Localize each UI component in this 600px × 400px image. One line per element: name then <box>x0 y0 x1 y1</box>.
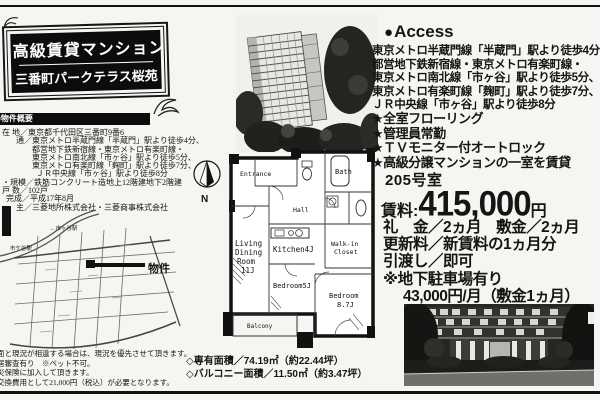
room-label-living-2: Dining <box>235 248 262 257</box>
room-label-hall: Hall <box>293 206 309 214</box>
room-label-wic-2: Closet <box>334 248 358 256</box>
access-text-block: 東京メトロ半蔵門線「半蔵門」駅より徒歩4分、 都営地下鉄新宿線・東京メトロ有楽町… <box>372 45 600 113</box>
flourish-ornament-small-icon <box>0 14 20 32</box>
title-inner-frame: 高級賃貸マンション 三番町パークテラス桜苑 <box>6 26 166 97</box>
room-label-balcony: Balcony <box>247 323 273 330</box>
feature-list: ★全室フローリング ★管理員常勤 ★ＴＶモニター付オートロック ★高級分譲マンシ… <box>372 112 600 170</box>
entrance-photo <box>404 304 594 386</box>
terms-block: 礼 金／2ヵ月 敷金／2ヵ月 更新料／新賃料の1ヵ月分 引渡し／即可 ※地下駐車… <box>383 219 600 305</box>
feature-item: ★管理員常勤 <box>372 127 600 142</box>
terms-line: 更新料／新賃料の1ヵ月分 <box>383 236 600 253</box>
rent-label: 賃料: <box>381 197 418 221</box>
terms-line: 引渡し／即可 <box>383 253 600 270</box>
map-illustration: 物件 ←市ヶ谷駅 市ケ谷駅 <box>0 206 185 354</box>
map-property-marker <box>86 260 95 268</box>
map-station-label-left: 市ケ谷駅 <box>10 244 33 252</box>
room-label-kitchen: Kitchen4J <box>273 245 314 254</box>
map-pointer-bar <box>95 263 145 267</box>
overview-text-block: 在 地／東京都千代田区三番町9番6 通／東京メトロ半蔵門線「半蔵門」駅より徒歩4… <box>2 129 192 212</box>
title-outer-frame: 高級賃貸マンション 三番町パークテラス桜苑 <box>2 22 170 102</box>
access-line: 都営地下鉄新宿線・東京メトロ有楽町線・ <box>372 59 600 73</box>
access-line: 東京メトロ南北線「市ヶ谷」駅より徒歩5分、 <box>372 72 600 86</box>
top-rule <box>0 5 600 7</box>
bottom-rule <box>0 391 600 394</box>
balcony-area-line: ◇バルコニー面積／11.50㎡（約3.47坪） <box>186 369 396 382</box>
floor-area-block: ◇専有面積／74.19㎡（約22.44坪） ◇バルコニー面積／11.50㎡（約3… <box>186 356 396 381</box>
flourish-ornament-icon <box>152 94 180 118</box>
title-black-panel: 高級賃貸マンション 三番町パークテラス桜苑 <box>10 30 162 93</box>
room-label-living-1: Living <box>235 239 262 248</box>
floor-plan: N <box>185 146 385 352</box>
neighborhood-map: 物件 ←市ヶ谷駅 市ケ谷駅 <box>0 206 185 354</box>
room-label-wic-1: Walk-in <box>331 240 358 248</box>
room-label-living-3: Room <box>237 257 256 266</box>
compass-n-label: N <box>201 194 208 205</box>
title-line2: 三番町パークテラス桜苑 <box>13 65 159 88</box>
room-label-bedroom87-2: 8.7J <box>337 301 354 309</box>
map-station-label-top: ←市ヶ谷駅 <box>50 224 78 232</box>
building-photo <box>236 15 378 152</box>
room-label-bedroom87-1: Bedroom <box>329 292 359 300</box>
access-line: 東京メトロ有楽町線「麹町」駅より徒歩7分、 <box>372 86 600 100</box>
access-header: ●Access <box>384 22 454 42</box>
terms-line: ※地下駐車場有り <box>383 271 600 288</box>
property-title-box: 高級賃貸マンション 三番町パークテラス桜苑 <box>2 22 170 102</box>
overview-header-bar: ■物件概要 <box>0 113 150 125</box>
feature-item: ★ＴＶモニター付オートロック <box>372 141 600 156</box>
map-property-label: 物件 <box>148 261 170 275</box>
rent-unit: 円 <box>531 197 547 221</box>
terms-line: 43,000円/月（敷金1ヵ月） <box>383 288 600 305</box>
title-line1: 高級賃貸マンション <box>12 34 159 62</box>
room-label-entrance: Entrance <box>240 170 271 178</box>
bullet-circle-icon: ● <box>384 24 393 41</box>
terms-line: 礼 金／2ヵ月 敷金／2ヵ月 <box>383 219 600 236</box>
access-header-label: Access <box>394 22 454 41</box>
access-line: 東京メトロ半蔵門線「半蔵門」駅より徒歩4分、 <box>372 45 600 59</box>
rent-amount: 415,000 <box>418 184 530 224</box>
room-label-living-4: 11J <box>241 266 255 275</box>
exclusive-area-line: ◇専有面積／74.19㎡（約22.44坪） <box>186 356 396 369</box>
feature-item: ★全室フローリング <box>372 112 600 127</box>
map-legend-bar <box>2 206 11 236</box>
room-label-bedroom5: Bedroom5J <box>273 282 311 290</box>
facade-upper-floors <box>422 307 576 339</box>
rental-flyer-page: 高級賃貸マンション 三番町パークテラス桜苑 ■物件概要 在 地／東京都千代田区三… <box>0 0 600 400</box>
compass-icon: N <box>194 161 220 205</box>
overview-header-label: ■物件概要 <box>0 113 150 125</box>
room-label-bath: Bath <box>335 168 352 176</box>
